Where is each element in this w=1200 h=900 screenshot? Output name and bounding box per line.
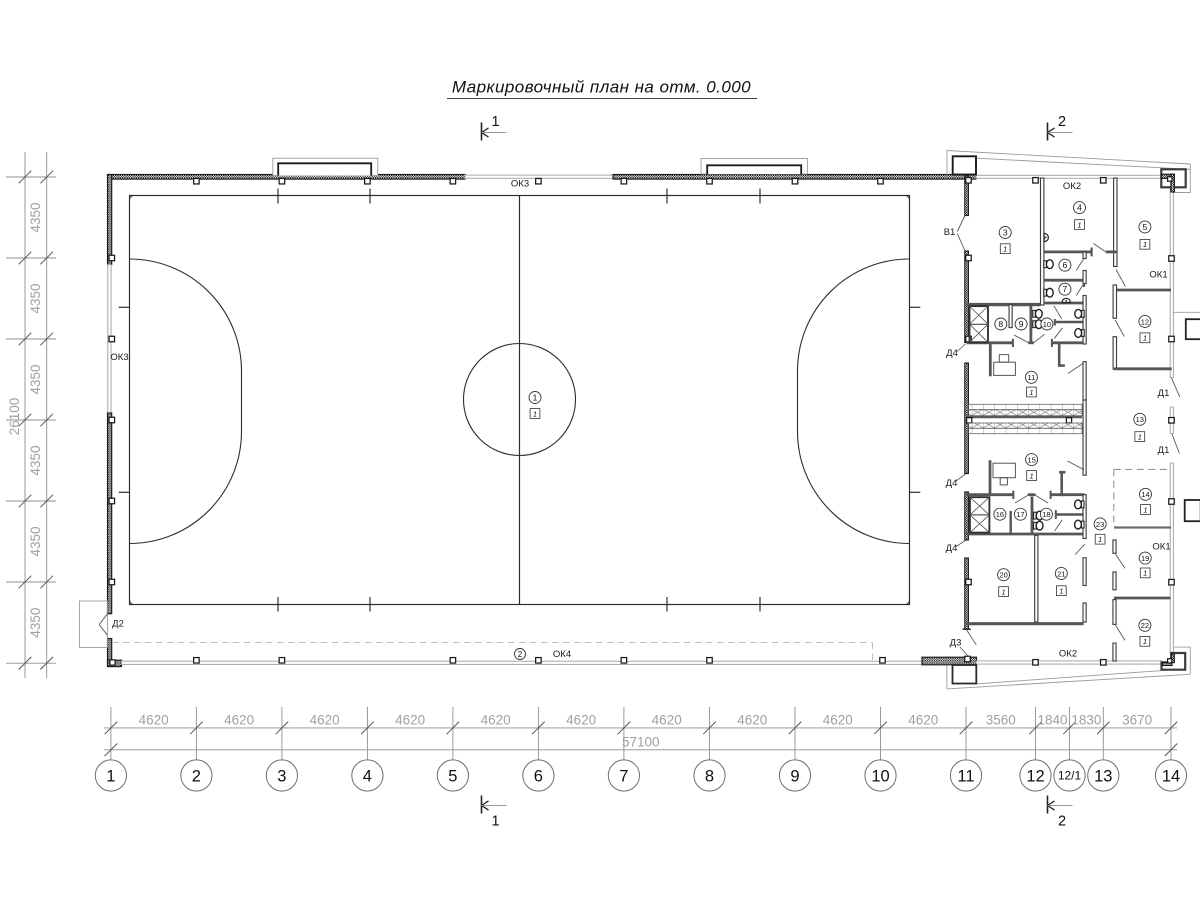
- svg-text:8: 8: [705, 767, 714, 785]
- svg-text:4350: 4350: [28, 526, 43, 556]
- svg-text:9: 9: [790, 767, 799, 785]
- svg-text:7: 7: [1063, 284, 1068, 294]
- svg-text:4350: 4350: [28, 608, 43, 638]
- svg-text:21: 21: [1057, 569, 1065, 578]
- svg-text:15: 15: [1027, 456, 1035, 465]
- svg-text:23: 23: [1096, 520, 1104, 529]
- svg-text:ОК3: ОК3: [110, 352, 128, 363]
- svg-text:19: 19: [1141, 554, 1149, 563]
- svg-text:4620: 4620: [823, 712, 853, 727]
- svg-text:1: 1: [1143, 569, 1147, 578]
- svg-text:4620: 4620: [652, 712, 682, 727]
- svg-text:2: 2: [1058, 814, 1066, 830]
- svg-text:11: 11: [1028, 373, 1036, 382]
- svg-text:1: 1: [1030, 471, 1034, 480]
- svg-text:57100: 57100: [622, 735, 660, 750]
- svg-text:4: 4: [363, 767, 372, 785]
- svg-text:26100: 26100: [7, 398, 22, 436]
- svg-text:ОК2: ОК2: [1059, 649, 1077, 660]
- svg-text:2: 2: [192, 767, 201, 785]
- svg-text:6: 6: [534, 767, 543, 785]
- svg-text:2: 2: [518, 650, 523, 659]
- svg-text:1: 1: [491, 814, 499, 830]
- svg-text:20: 20: [999, 571, 1007, 580]
- svg-text:5: 5: [448, 767, 457, 785]
- svg-text:1: 1: [1002, 587, 1006, 596]
- svg-text:1: 1: [1029, 388, 1033, 397]
- svg-text:1: 1: [1143, 637, 1147, 646]
- svg-text:ОК1: ОК1: [1149, 270, 1167, 281]
- svg-text:Маркировочный план на отм. 0.0: Маркировочный план на отм. 0.000: [452, 78, 751, 97]
- svg-text:4350: 4350: [28, 283, 43, 313]
- svg-text:12: 12: [1141, 317, 1149, 326]
- svg-text:4: 4: [1077, 203, 1082, 213]
- svg-text:Д4: Д4: [946, 543, 958, 554]
- svg-text:1: 1: [533, 409, 537, 418]
- svg-text:Д4: Д4: [946, 348, 958, 359]
- svg-text:12: 12: [1026, 767, 1044, 785]
- svg-text:1: 1: [1003, 245, 1007, 254]
- svg-text:1: 1: [1138, 432, 1142, 441]
- svg-text:1830: 1830: [1071, 712, 1101, 727]
- svg-text:Д1: Д1: [1158, 388, 1170, 399]
- svg-text:18: 18: [1042, 510, 1050, 519]
- svg-text:17: 17: [1016, 510, 1024, 519]
- svg-text:4620: 4620: [481, 712, 511, 727]
- svg-text:Д1: Д1: [1158, 445, 1170, 456]
- svg-text:3670: 3670: [1122, 712, 1152, 727]
- svg-text:1: 1: [106, 767, 115, 785]
- svg-text:1: 1: [1143, 334, 1147, 343]
- svg-text:4620: 4620: [224, 712, 254, 727]
- svg-text:3: 3: [1003, 227, 1008, 237]
- svg-text:2: 2: [1058, 114, 1066, 130]
- svg-text:1840: 1840: [1037, 712, 1067, 727]
- svg-text:6: 6: [1063, 260, 1068, 270]
- svg-text:13: 13: [1136, 415, 1144, 424]
- svg-text:3560: 3560: [986, 712, 1016, 727]
- svg-text:Д2: Д2: [112, 619, 124, 630]
- svg-text:ОК1: ОК1: [1152, 542, 1170, 553]
- svg-text:4350: 4350: [28, 445, 43, 475]
- svg-text:13: 13: [1094, 767, 1112, 785]
- svg-text:10: 10: [1043, 320, 1051, 329]
- svg-text:1: 1: [491, 114, 499, 130]
- svg-text:В1: В1: [944, 227, 956, 238]
- svg-text:ОК2: ОК2: [1063, 181, 1081, 192]
- svg-text:ОК4: ОК4: [553, 649, 571, 660]
- svg-text:7: 7: [619, 767, 628, 785]
- svg-text:Д3: Д3: [950, 638, 962, 649]
- svg-text:ОК3: ОК3: [511, 179, 529, 190]
- svg-text:1: 1: [1098, 535, 1102, 544]
- svg-text:4620: 4620: [908, 712, 938, 727]
- svg-text:1: 1: [1143, 240, 1147, 249]
- svg-text:10: 10: [871, 767, 889, 785]
- svg-text:8: 8: [998, 319, 1003, 329]
- svg-text:4350: 4350: [28, 364, 43, 394]
- svg-text:Д4: Д4: [946, 478, 958, 489]
- svg-text:4350: 4350: [28, 202, 43, 232]
- svg-text:4620: 4620: [139, 712, 169, 727]
- svg-text:12/1: 12/1: [1058, 769, 1082, 783]
- svg-text:4620: 4620: [395, 712, 425, 727]
- svg-text:14: 14: [1141, 490, 1149, 499]
- svg-text:16: 16: [996, 510, 1004, 519]
- svg-text:14: 14: [1162, 767, 1180, 785]
- svg-text:9: 9: [1019, 319, 1024, 329]
- svg-text:4620: 4620: [310, 712, 340, 727]
- svg-text:5: 5: [1143, 222, 1148, 232]
- svg-text:4620: 4620: [737, 712, 767, 727]
- svg-text:1: 1: [1077, 220, 1081, 229]
- svg-text:1: 1: [1143, 505, 1147, 514]
- svg-text:22: 22: [1141, 621, 1149, 630]
- svg-text:4620: 4620: [566, 712, 596, 727]
- svg-text:1: 1: [533, 392, 538, 402]
- svg-text:3: 3: [277, 767, 286, 785]
- svg-text:11: 11: [957, 767, 974, 785]
- svg-text:1: 1: [1059, 587, 1063, 596]
